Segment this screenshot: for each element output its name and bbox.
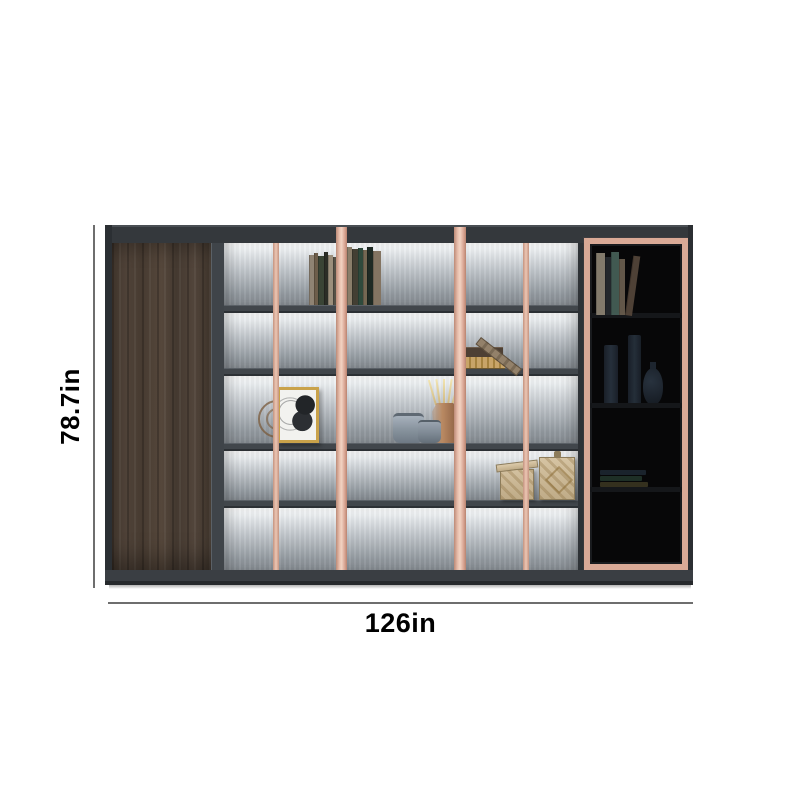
- picture-frame: [277, 387, 319, 443]
- height-dimension-label: 78.7in: [55, 334, 86, 479]
- glass-round-vase: [643, 368, 663, 405]
- glass-shelf-3: [590, 487, 682, 492]
- book-spine: [596, 253, 605, 315]
- book-spine: [600, 470, 646, 475]
- decor-box-large: [539, 457, 575, 500]
- cabinet-left-edge: [105, 225, 112, 570]
- book-spine: [619, 259, 625, 315]
- wood-door-panel: [112, 243, 211, 570]
- glass-display-door: [584, 238, 688, 570]
- box-diamond-motif: [545, 466, 573, 494]
- width-dimension-label: 126in: [108, 608, 693, 639]
- bookcase-cabinet: [105, 225, 693, 585]
- copper-trim-wide-1: [336, 227, 347, 572]
- book-spine: [600, 476, 642, 481]
- decor-box-knob: [554, 451, 561, 458]
- book-spine: [625, 256, 640, 316]
- tinted-glass-panel: [590, 244, 682, 564]
- module-divider-panel: [211, 243, 224, 570]
- glass-vase-cylinder-1: [604, 345, 618, 405]
- book-spine: [611, 252, 619, 315]
- glass-shelf-2: [590, 403, 682, 408]
- abstract-artwork: [280, 390, 316, 440]
- copper-trim-wide-2: [454, 227, 466, 572]
- glass-vase-cylinder-2: [628, 335, 641, 405]
- height-dimension-line: [93, 225, 95, 588]
- glass-book-group: [596, 250, 676, 315]
- diffuser-stick: [443, 379, 445, 405]
- book-spine: [373, 251, 381, 305]
- cabinet-base-plinth: [105, 570, 693, 585]
- width-dimension-line: [108, 602, 693, 604]
- diffuser-sticks: [435, 377, 455, 405]
- copper-trim-thin-1: [273, 243, 279, 570]
- product-dimension-image: 78.7in 126in: [0, 0, 800, 800]
- copper-trim-thin-2: [523, 243, 529, 570]
- small-gray-cup: [418, 420, 441, 443]
- glass-low-book-stack: [600, 470, 660, 487]
- cabinet-right-edge: [688, 225, 693, 570]
